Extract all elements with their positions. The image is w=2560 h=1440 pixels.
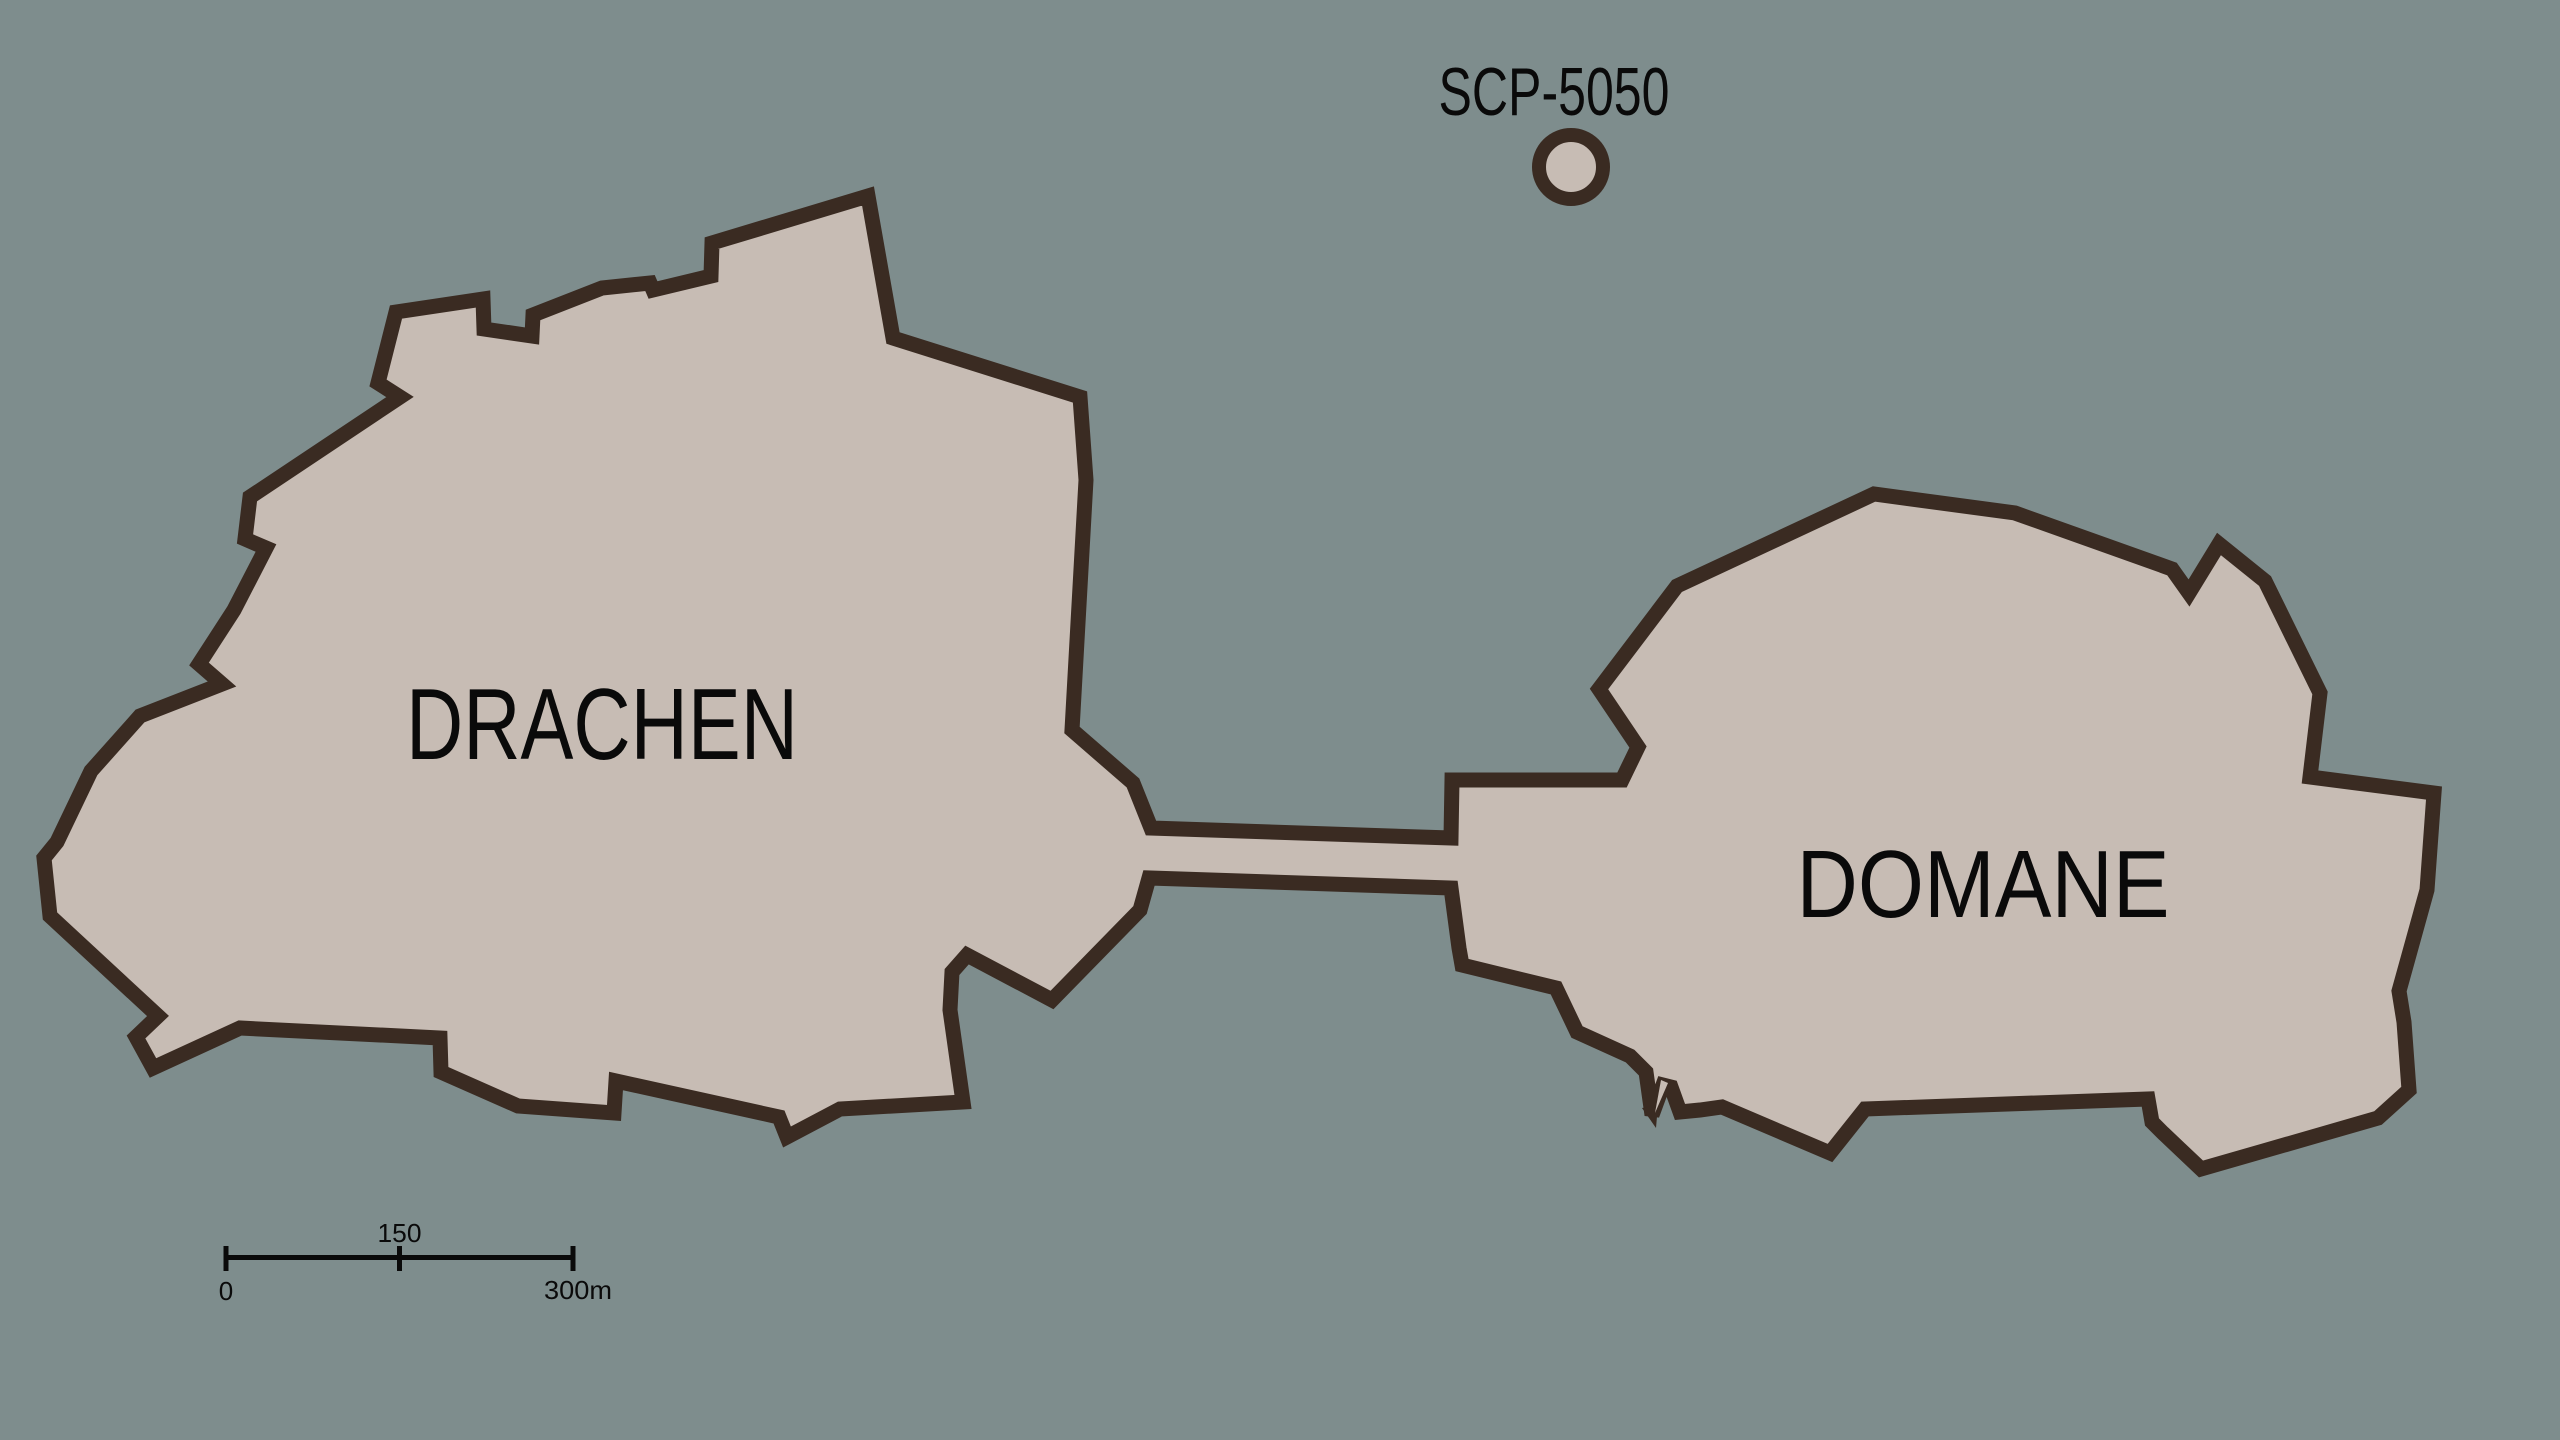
svg-text:SCP-5050: SCP-5050 — [1439, 54, 1670, 130]
svg-text:0: 0 — [219, 1276, 233, 1306]
svg-text:300m: 300m — [544, 1275, 612, 1305]
svg-text:150: 150 — [378, 1218, 422, 1248]
svg-text:DOMANE: DOMANE — [1797, 831, 2170, 938]
svg-text:DRACHEN: DRACHEN — [406, 669, 798, 781]
